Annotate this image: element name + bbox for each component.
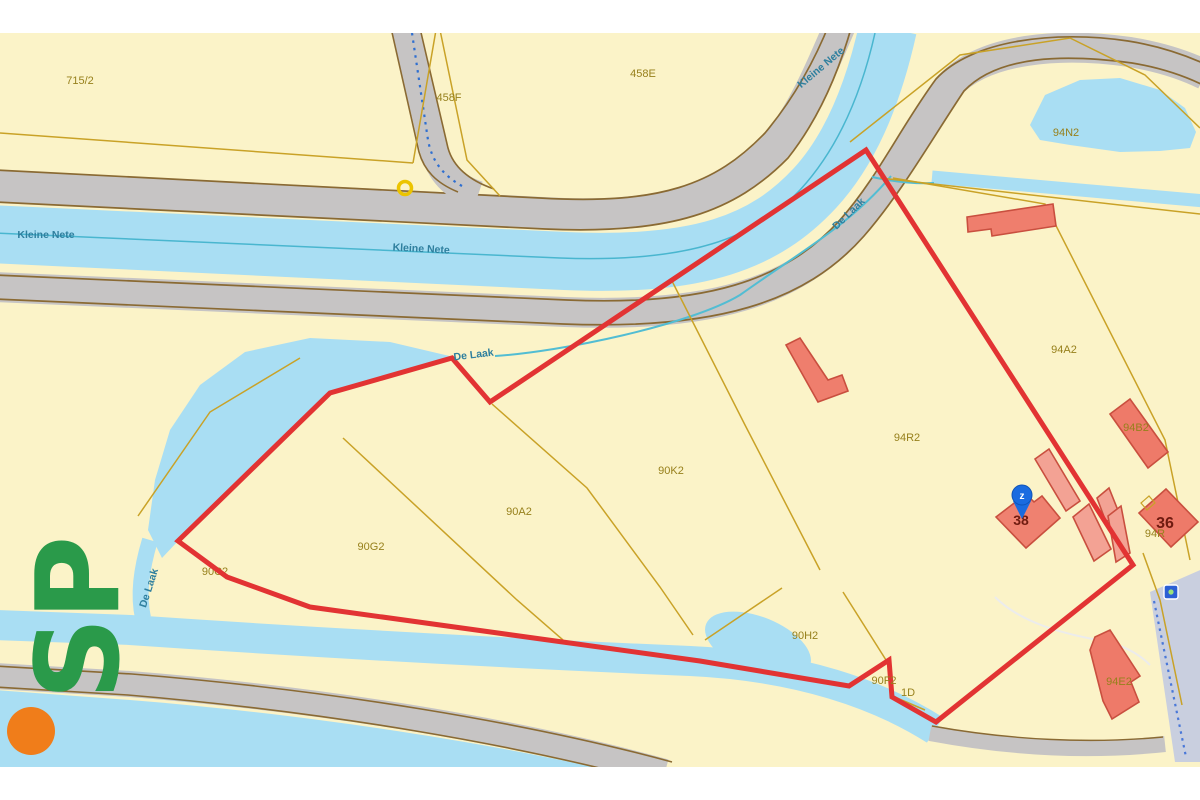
map-canvas[interactable]: 90C2 1D 715/2 458F 458E 94N2 94A2 94R2 9… — [0, 0, 1200, 800]
parcel-label-94a2: 94A2 — [1051, 344, 1077, 356]
railway-poi-icon — [1164, 585, 1178, 599]
page-margin-top — [0, 0, 1200, 33]
parcel-label-90a2: 90A2 — [506, 506, 532, 518]
parcel-label-90f2: 90F2 — [871, 675, 896, 687]
parcel-label-1d: 1D — [901, 687, 915, 699]
parcel-label-90g2: 90G2 — [358, 541, 385, 553]
page-margin-bottom — [0, 767, 1200, 800]
parcel-label-715-2: 715/2 — [66, 75, 94, 87]
map-pin-label: z — [1020, 491, 1025, 502]
water-label-kleine-nete-1: Kleine Nete — [17, 229, 74, 241]
logo-text: SP — [12, 539, 146, 700]
parcel-label-94b2: 94B2 — [1123, 422, 1149, 434]
parcel-label-94e2: 94E2 — [1106, 676, 1132, 688]
parcel-label-90k2: 90K2 — [658, 465, 684, 477]
parcel-label-94r2: 94R2 — [894, 432, 920, 444]
parcel-label-90h2: 90H2 — [792, 630, 818, 642]
map-viewport[interactable]: 90C2 1D 715/2 458F 458E 94N2 94A2 94R2 9… — [0, 0, 1200, 800]
house-number-36: 36 — [1156, 515, 1174, 532]
parcel-label-458e: 458E — [630, 68, 656, 80]
parcel-label-94n2: 94N2 — [1053, 127, 1079, 139]
parcel-label-458f: 458F — [436, 92, 461, 104]
logo-dot — [7, 707, 55, 755]
